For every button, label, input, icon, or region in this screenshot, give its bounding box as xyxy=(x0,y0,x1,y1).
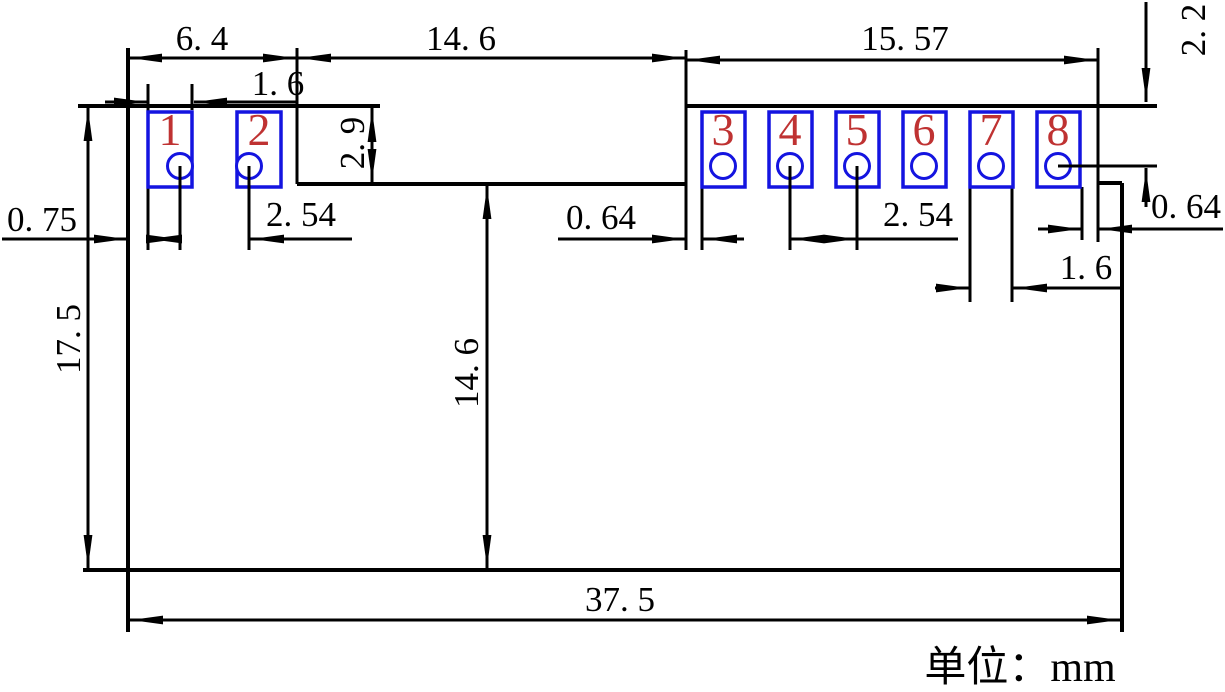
dim-15-57-label: 15. 57 xyxy=(861,19,949,58)
dim-0-75-label: 0. 75 xyxy=(7,200,77,239)
dim-2-54-mid-label: 2. 54 xyxy=(883,195,953,234)
dim-2-54-left-label: 2. 54 xyxy=(266,195,336,234)
dim-14-6-mid-label: 14. 6 xyxy=(447,338,486,408)
unit-note: 单位：mm xyxy=(924,644,1116,691)
dim-0-64-right-label: 0. 64 xyxy=(1151,187,1221,226)
dim-37-5-label: 37. 5 xyxy=(585,580,655,619)
dim-1-6-right-label: 1. 6 xyxy=(1060,248,1113,287)
dimension-drawing: 1 2 3 4 5 6 7 8 xyxy=(0,0,1225,692)
pad-8-number: 8 xyxy=(1047,104,1070,155)
pad-3-number: 3 xyxy=(712,104,735,155)
dim-2-9-label: 2. 9 xyxy=(333,117,372,170)
dim-1-6-left-label: 1. 6 xyxy=(252,64,305,103)
dim-0-64-left-label: 0. 64 xyxy=(566,198,636,237)
dim-17-5-label: 17. 5 xyxy=(49,304,88,374)
dimension-lines xyxy=(2,2,1223,620)
pad-4-number: 4 xyxy=(779,104,802,155)
pad-7-number: 7 xyxy=(980,104,1003,155)
dim-2-2-label: 2. 2 xyxy=(1174,4,1213,57)
pad-6-number: 6 xyxy=(913,104,936,155)
pad-5-number: 5 xyxy=(846,104,869,155)
pad-2-number: 2 xyxy=(248,104,271,155)
pad-1-number: 1 xyxy=(159,104,182,155)
technical-drawing-page: 1 2 3 4 5 6 7 8 xyxy=(0,0,1225,692)
dim-6-4-label: 6. 4 xyxy=(176,19,229,58)
dim-14-6-top-label: 14. 6 xyxy=(426,19,496,58)
